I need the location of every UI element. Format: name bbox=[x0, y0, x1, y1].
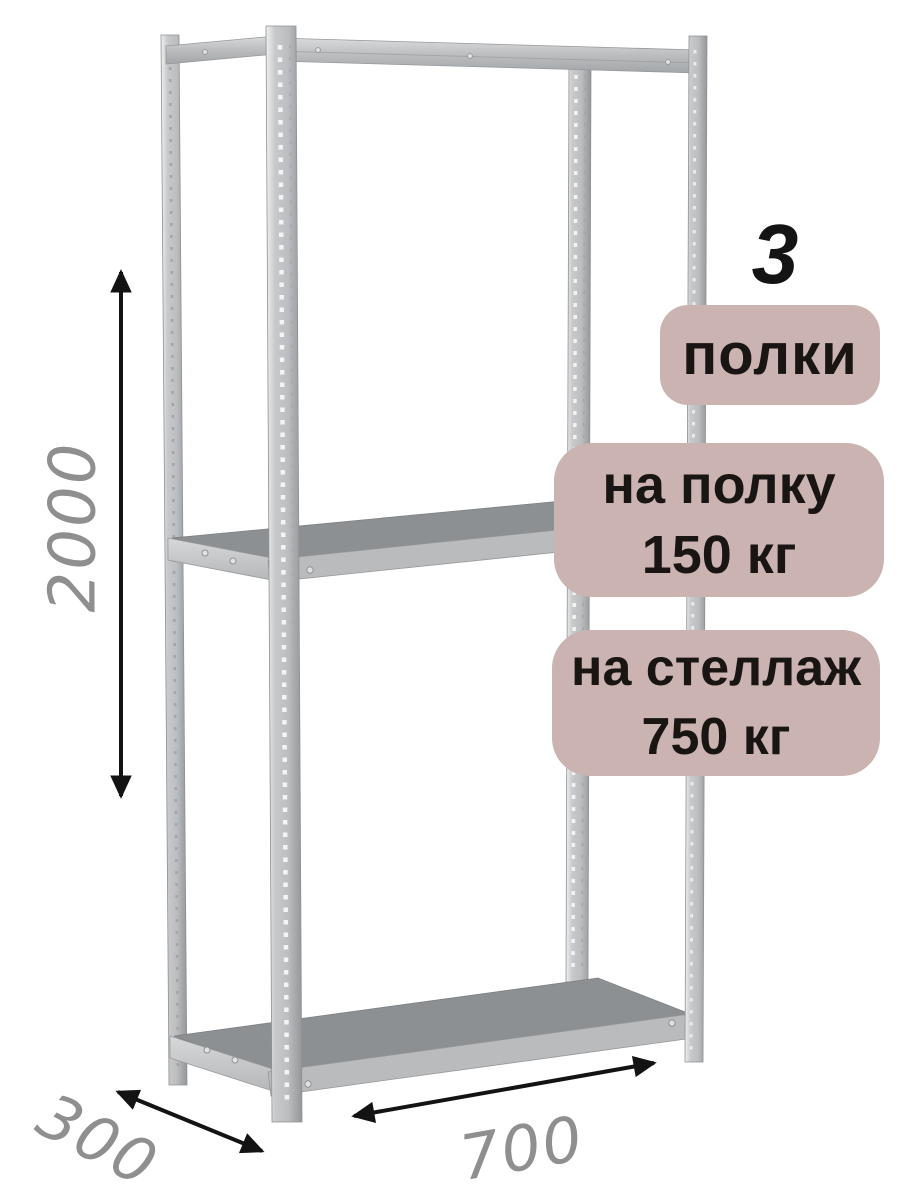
depth-dimension-label: 300 bbox=[26, 1079, 170, 1200]
top-left-beam bbox=[166, 36, 276, 64]
top-front-beam bbox=[276, 38, 698, 73]
front-left-post bbox=[266, 26, 302, 1122]
per-rack-load-line1: на стеллаж bbox=[552, 634, 880, 703]
per-rack-load-line2: 750 кг bbox=[552, 703, 880, 772]
height-dimension-label: 2000 bbox=[36, 442, 110, 613]
per-shelf-load-line1: на полку bbox=[554, 450, 884, 520]
bottom-shelf bbox=[170, 978, 693, 1096]
per-rack-load-badge: на стеллаж 750 кг bbox=[552, 630, 880, 776]
per-shelf-load-badge: на полку 150 кг bbox=[554, 443, 884, 597]
per-shelf-load-line2: 150 кг bbox=[554, 520, 884, 590]
product-image: 2000 300 700 3 полки на полку 150 кг на … bbox=[0, 0, 900, 1200]
shelf-count-label: полки bbox=[682, 322, 858, 387]
shelf-count-value: 3 bbox=[730, 212, 820, 296]
shelf-count-badge: полки bbox=[660, 305, 880, 405]
rack-illustration: 2000 300 700 bbox=[0, 0, 900, 1200]
width-dimension-label: 700 bbox=[454, 1101, 589, 1194]
